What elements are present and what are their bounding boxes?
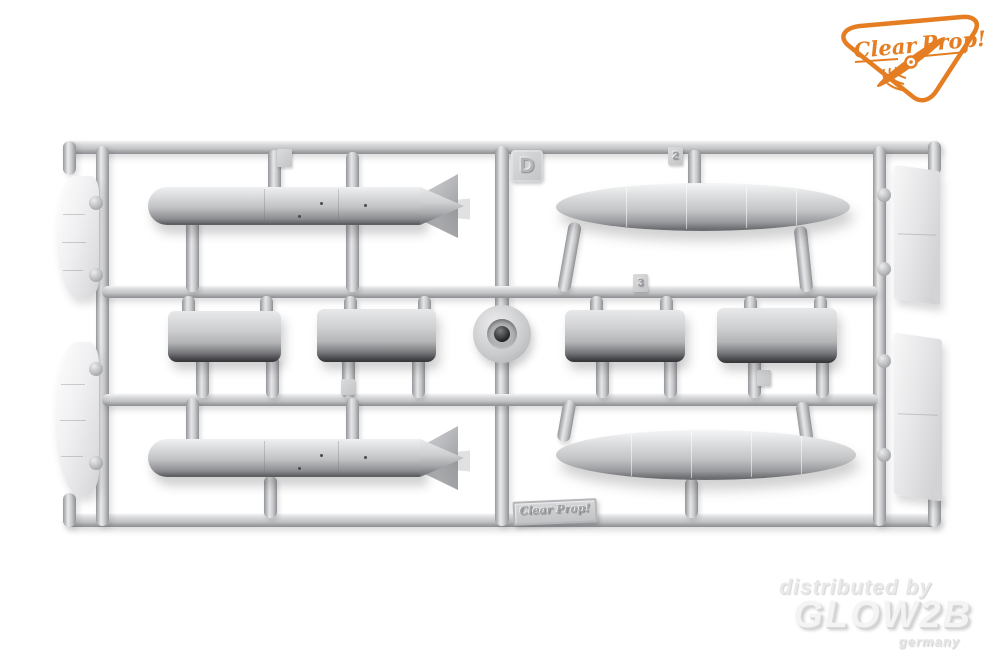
panel-line	[60, 420, 86, 421]
brand-logo-svg: Clear Prop!	[826, 10, 990, 110]
detail-hole	[298, 215, 301, 218]
watermark-germany: germany	[899, 634, 960, 649]
sprue-nameplate: Clear Prop!	[513, 498, 598, 526]
panel-line	[746, 186, 747, 228]
logo-propeller-hub-dot	[909, 60, 913, 64]
part-finned-drop-tank-top	[148, 172, 478, 242]
panel-line	[61, 384, 85, 385]
sprue-runner-middle-2	[102, 394, 878, 406]
panel-line	[631, 434, 632, 476]
panel-line	[686, 185, 687, 229]
panel-line	[62, 242, 86, 243]
part-tank-half-shell	[565, 310, 685, 362]
part-number-tag: 2	[668, 147, 683, 165]
panel-line	[796, 189, 797, 225]
round-cap-ball	[494, 326, 510, 342]
tank-body	[148, 439, 424, 477]
panel-line	[338, 441, 339, 475]
part-number-tag	[341, 379, 355, 395]
runner-stub	[664, 356, 677, 398]
part-flat-panel-right-top	[894, 165, 940, 305]
brand-logo-badge: Clear Prop!	[826, 10, 990, 110]
panel-line	[61, 456, 83, 457]
part-tank-half-shell	[317, 309, 436, 362]
sprue-rail-right	[873, 146, 886, 526]
part-round-cap	[473, 305, 531, 363]
part-number-tag: 3	[633, 274, 648, 292]
gate-ball	[877, 448, 891, 462]
detail-hole	[298, 467, 301, 470]
logo-text-prop: Prop!	[919, 26, 987, 57]
panel-line	[63, 214, 85, 215]
product-photo-sprue: D 2 3	[0, 0, 1000, 667]
runner-stub	[596, 356, 609, 398]
panel-line	[338, 189, 339, 223]
runner-stub	[557, 221, 582, 292]
gate-ball	[89, 362, 103, 376]
panel-line	[264, 189, 265, 223]
part-number-tag	[277, 149, 292, 167]
part-tank-half-shell	[168, 311, 281, 362]
part-streamlined-tank-top	[556, 183, 850, 231]
gate-ball	[877, 188, 891, 202]
panel-line	[264, 441, 265, 475]
part-tank-half-shell	[717, 308, 837, 363]
runner-stub	[412, 356, 425, 398]
panel-line	[63, 270, 83, 271]
gate-ball	[89, 268, 103, 282]
panel-line	[626, 187, 627, 227]
part-streamlined-tank-bottom	[556, 430, 856, 480]
sprue-letter-tab: D	[511, 150, 543, 182]
panel-line	[898, 413, 938, 415]
gate-ball	[877, 354, 891, 368]
tank-body	[148, 187, 424, 225]
detail-hole	[364, 456, 367, 459]
sprue-runner-middle-1	[102, 286, 878, 298]
gate-ball	[89, 456, 103, 470]
panel-line	[691, 432, 692, 478]
runner-stub	[196, 356, 209, 398]
sprue-corner-hook-bl	[63, 493, 76, 527]
detail-hole	[320, 202, 323, 205]
gate-ball	[89, 196, 103, 210]
watermark-glow2b: GLOW2B	[793, 594, 972, 637]
detail-hole	[364, 204, 367, 207]
part-flat-panel-right-bottom	[894, 333, 942, 502]
gate-ball	[877, 262, 891, 276]
runner-stub	[266, 356, 279, 398]
part-number-tag	[757, 370, 771, 386]
panel-line	[801, 436, 802, 474]
panel-line	[751, 433, 752, 477]
sprue-corner-hook-tl	[63, 141, 76, 175]
runner-stub	[794, 226, 814, 293]
runner-stub	[685, 478, 698, 518]
detail-hole	[320, 454, 323, 457]
panel-line	[898, 233, 936, 235]
part-finned-drop-tank-bottom	[148, 424, 478, 494]
